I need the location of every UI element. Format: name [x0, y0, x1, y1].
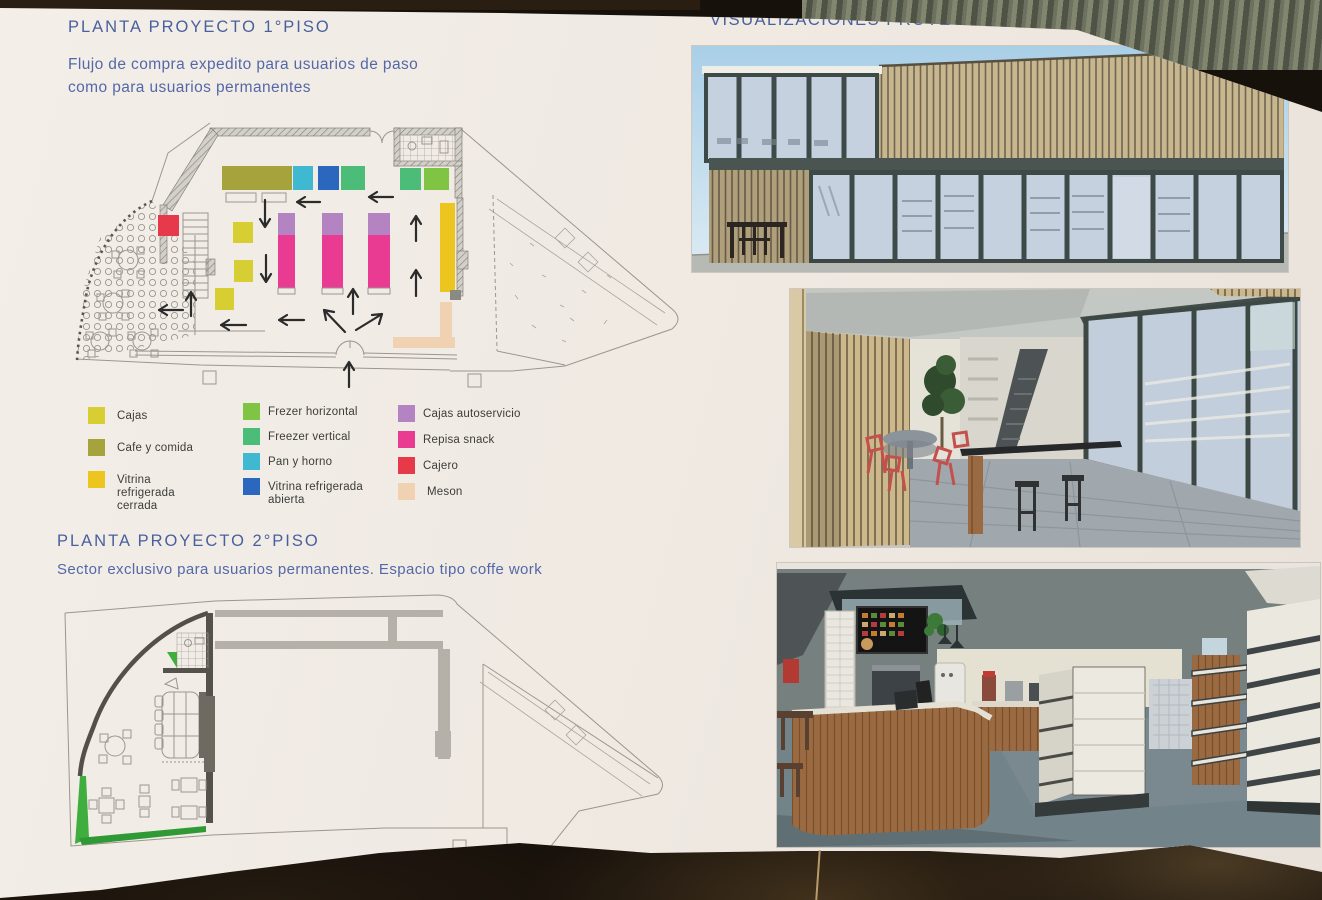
legend-label: Freezer vertical — [268, 428, 350, 444]
plan1-legend: Cajas Cafe y comida Vitrina refrigerada … — [88, 403, 548, 513]
floor-plan-2 — [55, 588, 695, 880]
legend-item-pan-y-horno: Pan y horno — [243, 453, 398, 470]
legend-item-cajas-autoservicio: Cajas autoservicio — [398, 405, 548, 422]
cajero-atm — [158, 215, 179, 236]
plan1-subtitle: Flujo de compra expedito para usuarios d… — [68, 53, 418, 99]
repisa-snack-2 — [322, 235, 343, 288]
grass-strip-bottom — [79, 826, 206, 845]
autoservicio-3 — [368, 213, 390, 235]
plan2-gray-walls — [215, 610, 451, 759]
plan1-top-door-arcs — [370, 131, 394, 143]
interior-glimpse — [960, 337, 1086, 461]
autoservicio-2 — [322, 213, 343, 235]
legend-label: Pan y horno — [268, 453, 332, 469]
legend-item-frezer-horizontal: Frezer horizontal — [243, 403, 398, 420]
frezer-horizontal — [424, 168, 449, 190]
counter-front-wood — [792, 707, 990, 835]
legend-swatch-pan-y-horno — [243, 453, 260, 470]
plan2-title: PLANTA PROYECTO 2°PISO — [57, 532, 320, 551]
plan2-terrace-triangle — [480, 664, 658, 828]
lower-left-slats — [709, 170, 809, 263]
legend-item-freezer-vertical: Freezer vertical — [243, 428, 398, 445]
legend-label: Repisa snack — [423, 431, 494, 447]
legend-label: Cafe y comida — [117, 439, 193, 455]
brick-column — [825, 611, 855, 711]
legend-item-cafe-y-comida: Cafe y comida — [88, 439, 243, 456]
legend-column-1: Cajas Cafe y comida Vitrina refrigerada … — [88, 403, 243, 513]
legend-swatch-cajas-autoservicio — [398, 405, 415, 422]
legend-swatch-vitrina-abierta — [243, 478, 260, 495]
pegboard — [1149, 679, 1193, 749]
plan2-tables — [89, 730, 206, 823]
legend-swatch-cafe-y-comida — [88, 439, 105, 456]
autoservicio-1 — [278, 213, 295, 235]
render-terrace-view — [790, 289, 1300, 547]
menu-screen — [857, 607, 927, 653]
pos-terminal — [894, 690, 918, 710]
legend-column-2: Frezer horizontal Freezer vertical Pan y… — [243, 403, 398, 513]
legend-label: Cajero — [423, 457, 458, 473]
red-sign — [783, 659, 799, 683]
legend-swatch-vitrina-cerrada — [88, 471, 105, 488]
meson-horizontal — [393, 337, 455, 348]
plan1-subtitle-line2: como para usuarios permanentes — [68, 79, 311, 96]
freezer-vertical-2 — [400, 168, 421, 190]
column-marker — [453, 840, 466, 853]
legend-label: Meson — [423, 483, 463, 499]
legend-item-vitrina-cerrada: Vitrina refrigerada cerrada — [88, 471, 243, 513]
repisa-snack-1 — [278, 235, 295, 288]
plan1-bathroom — [400, 135, 455, 161]
pan-horno — [293, 166, 313, 190]
legend-column-3: Cajas autoservicio Repisa snack Cajero M… — [398, 403, 548, 513]
presentation-board: PLANTA PROYECTO 1°PISO Flujo de compra e… — [0, 0, 1322, 900]
plan1-subtitle-line1: Flujo de compra expedito para usuarios d… — [68, 56, 418, 73]
legend-item-meson: Meson — [398, 483, 548, 500]
entry-door-arcs — [336, 341, 364, 355]
legend-swatch-freezer-vertical — [243, 428, 260, 445]
table-surface-edge — [0, 0, 700, 10]
legend-label: Vitrina refrigerada abierta — [268, 478, 363, 507]
plan2-subtitle: Sector exclusivo para usuarios permanent… — [57, 558, 542, 581]
repisa-snack-3 — [368, 235, 390, 288]
vitrina-abierta — [318, 166, 339, 190]
plan2-booth-seating — [155, 678, 199, 758]
legend-item-vitrina-abierta: Vitrina refrigerada abierta — [243, 478, 398, 507]
plan1-terrace-triangle — [489, 199, 665, 342]
render-shop-interior — [777, 563, 1320, 847]
legend-swatch-repisa-snack — [398, 431, 415, 448]
vitrina-cerrada — [440, 203, 455, 292]
storefront-glass — [809, 170, 1284, 263]
roof-slat-sliver — [1210, 289, 1300, 297]
grass-strip-left — [75, 776, 89, 844]
floor-fascia — [709, 158, 1284, 170]
back-cabinets-top — [972, 701, 1044, 707]
legend-item-cajas: Cajas — [88, 407, 243, 424]
center-gondola-shelf — [1035, 667, 1149, 817]
legend-swatch-meson — [398, 483, 415, 500]
legend-item-cajero: Cajero — [398, 457, 548, 474]
legend-label: Cajas — [117, 407, 147, 423]
upper-glass-box — [702, 66, 882, 163]
column-marker — [203, 371, 216, 384]
render-building-elevation — [692, 46, 1288, 272]
column-marker — [468, 374, 481, 387]
meson-vertical — [440, 302, 452, 337]
legend-label: Cajas autoservicio — [423, 405, 521, 421]
plan2-bathroom — [163, 633, 213, 673]
freezer-vertical — [341, 166, 365, 190]
plan2-coffee-area — [75, 613, 215, 845]
caja-2 — [234, 260, 253, 282]
legend-swatch-frezer-horizontal — [243, 403, 260, 420]
legend-swatch-cajero — [398, 457, 415, 474]
legend-swatch-cajas — [88, 407, 105, 424]
legend-item-repisa-snack: Repisa snack — [398, 431, 548, 448]
floor-plan-1 — [60, 113, 700, 400]
legend-label: Vitrina refrigerada cerrada — [117, 471, 207, 513]
string-artifact — [815, 850, 820, 900]
caja-3 — [215, 288, 234, 310]
plan1-title: PLANTA PROYECTO 1°PISO — [68, 18, 331, 37]
caja-1 — [233, 222, 253, 243]
cafe-comida-counter — [222, 166, 292, 190]
legend-label: Frezer horizontal — [268, 403, 358, 419]
plan1-furniture — [158, 166, 461, 348]
